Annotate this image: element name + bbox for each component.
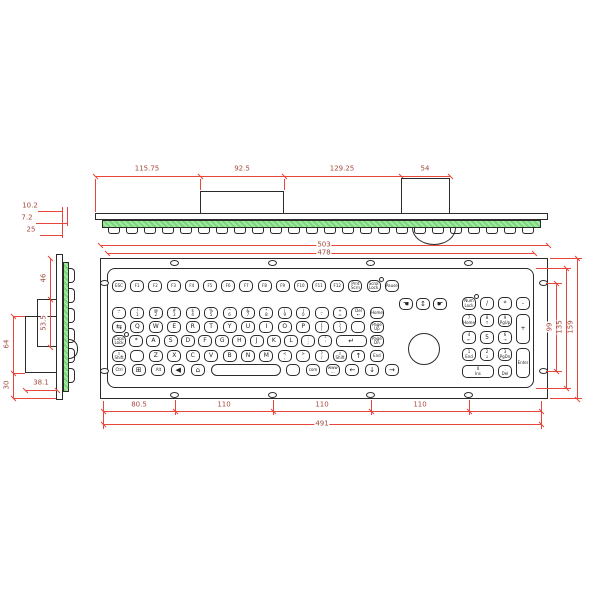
dimension-line: [13, 373, 14, 398]
dimension-label: 53.5: [41, 314, 48, 332]
extension-line: [200, 179, 201, 190]
dimension-label: 10.2: [21, 203, 39, 210]
space-key: [211, 364, 281, 376]
dimension-line: [40, 235, 62, 236]
key-f9: F9: [276, 280, 290, 292]
key-f: F: [198, 335, 212, 347]
mounting-hole: [100, 280, 109, 286]
key-i: I: [259, 321, 273, 333]
right-shift-key: ⇧Shift: [333, 350, 347, 362]
key-f4: F4: [185, 280, 199, 292]
extension-line: [13, 373, 25, 374]
key-profile-bump: [486, 228, 498, 234]
www-key: www...: [326, 364, 340, 376]
keyboard-technical-drawing: 115.75 92.5 129.25 54 10.2 7.2 25: [0, 0, 600, 600]
extension-line: [67, 207, 68, 226]
key-profile-bump: [216, 228, 228, 234]
key-profile-bump: [360, 228, 372, 234]
key-f8: F8: [258, 280, 272, 292]
extension-line: [95, 179, 96, 212]
mounting-hole: [268, 392, 277, 398]
dimension-line: [50, 258, 51, 299]
dimension-label: 7.2: [20, 215, 33, 222]
key-profile-bump: [504, 228, 516, 234]
dimension-label: 92.5: [233, 166, 251, 173]
dimension-label: 110: [216, 402, 231, 409]
key-profile-bump: [69, 288, 75, 303]
dimension-label: 478: [316, 250, 331, 257]
key-profile-bump: [69, 268, 75, 283]
numpad-dot-key: .Del: [498, 365, 512, 378]
numpad-3-key: 3PgDn: [498, 348, 512, 361]
dimension-label: 64: [4, 339, 11, 350]
mounting-hole: [170, 260, 179, 266]
key-f5: F5: [203, 280, 217, 292]
key-r: R: [186, 321, 200, 333]
bottom-key-row: Ctrl⊞Alt◀⌂comwww...←↓→: [112, 364, 399, 376]
esc-key: ESC: [112, 280, 126, 292]
dimension-label: 80.5: [130, 402, 148, 409]
numpad-8-key: 8↑: [480, 314, 494, 327]
key-profile-bump: [162, 228, 174, 234]
dimension-line: [13, 316, 14, 373]
extension-line: [13, 316, 25, 317]
numpad-4-key: 4←: [462, 331, 476, 344]
semicolon-key: :;: [301, 335, 315, 347]
key-7: &7: [241, 307, 255, 319]
side-view-trackball-dome: [69, 339, 78, 359]
key-profile-bump: [252, 228, 264, 234]
key-f11: F11: [312, 280, 326, 292]
key-4: $4: [186, 307, 200, 319]
numpad-plus-key: +: [516, 314, 530, 344]
down-arrow-key: ↓: [365, 364, 379, 376]
key-y: Y: [223, 321, 237, 333]
pause-key: Pause: [385, 280, 399, 292]
qwerty-key-row: ⇆QWERTYUIOP{[}]PageUp: [112, 321, 384, 333]
numpad-5-key: 5: [480, 331, 494, 344]
tab-key: ⇆: [112, 321, 126, 333]
key-q: Q: [130, 321, 144, 333]
key-0: )0: [296, 307, 310, 319]
top-view-keys: [108, 228, 534, 234]
mouse-right-click-key: ☛: [433, 298, 447, 310]
numpad-multiply-key: *: [498, 297, 512, 310]
numpad-0-key: 0Ins: [462, 365, 494, 378]
shift-key-row: ⇧ShiftZXCVBNM<,>.?/⇧Shift↑End: [112, 350, 384, 362]
key-p: P: [296, 321, 310, 333]
key-m: M: [259, 350, 273, 362]
key-t: T: [204, 321, 218, 333]
key-u: U: [241, 321, 255, 333]
key-b: B: [223, 350, 237, 362]
enter-key: ↵: [336, 335, 367, 347]
key-9: (9: [278, 307, 292, 319]
side-view-panel-plate: [56, 254, 63, 400]
extension-line: [546, 283, 562, 284]
key-f2: F2: [148, 280, 162, 292]
rear-box-tall: [401, 178, 450, 214]
equals-key: +=: [333, 307, 347, 319]
com-key: com: [306, 364, 320, 376]
extension-line: [13, 398, 56, 399]
key-profile-bump: [324, 228, 336, 234]
key-v: V: [204, 350, 218, 362]
key-f10: F10: [294, 280, 308, 292]
extension-line: [284, 179, 285, 190]
web-home-key: ⌂: [191, 364, 205, 376]
numeric-keypad: NumLock/*-7Home8↑9PgUp+4←56→1End2↓3PgDnE…: [462, 297, 530, 378]
key-h: H: [232, 335, 246, 347]
numpad-minus-key: -: [516, 297, 530, 310]
numpad-1-key: 1End: [462, 348, 476, 361]
dimension-label: 159: [568, 319, 575, 334]
key-n: N: [241, 350, 255, 362]
numlock-key: NumLock: [462, 297, 476, 310]
key-e: E: [167, 321, 181, 333]
key-1: !1: [130, 307, 144, 319]
extension-line: [546, 371, 562, 372]
key-f3: F3: [167, 280, 181, 292]
dimension-label: 99: [547, 322, 554, 333]
extension-line: [62, 207, 63, 238]
number-key-row: ~`!1@2#3$4%5^6&7*8(9)0_-+=Del←Home: [112, 307, 384, 319]
key-profile-bump: [144, 228, 156, 234]
key-2: @2: [149, 307, 163, 319]
dimension-label: 25: [26, 227, 37, 234]
dimension-label: 30: [4, 380, 11, 391]
mounting-hole: [366, 260, 375, 266]
dimension-line: [103, 411, 541, 412]
minus-key: _-: [315, 307, 329, 319]
mounting-hole: [464, 260, 473, 266]
dimension-label: 110: [314, 402, 329, 409]
right-arrow-key: →: [385, 364, 399, 376]
key-3: #3: [167, 307, 181, 319]
key-o: O: [278, 321, 292, 333]
dimension-label: 115.75: [134, 166, 161, 173]
dimension-line: [577, 258, 578, 399]
led-indicator: [474, 294, 479, 299]
mounting-hole: [464, 392, 473, 398]
rear-box-small: [200, 191, 284, 214]
dimension-label: 38.1: [32, 380, 50, 387]
key-f12: F12: [330, 280, 344, 292]
key-profile-bump: [306, 228, 318, 234]
blank-key: [351, 321, 365, 333]
mouse-scroll-key: ↕: [416, 298, 430, 310]
top-view-trackball-dome: [412, 228, 456, 245]
backspace-key: Del←: [351, 307, 365, 319]
left-shift-key: ⇧Shift: [112, 350, 126, 362]
mounting-hole: [366, 392, 375, 398]
scrolllock-key: ScrolLock: [367, 280, 381, 292]
win-key: ⊞: [132, 364, 146, 376]
side-view-keys: [69, 268, 75, 383]
dimension-line: [25, 390, 57, 391]
key-profile-bump: [342, 228, 354, 234]
key-z: Z: [149, 350, 163, 362]
lbracket-key: {[: [315, 321, 329, 333]
dimension-line: [95, 176, 450, 177]
alt-key: Alt: [151, 364, 165, 376]
left-arrow-key: ←: [345, 364, 359, 376]
key-j: J: [250, 335, 264, 347]
dimension-line: [38, 211, 62, 212]
key-profile-bump: [69, 308, 75, 323]
top-view-pcb: [102, 220, 541, 228]
numpad-divide-key: /: [480, 297, 494, 310]
numpad-9-key: 9PgUp: [498, 314, 512, 327]
top-view-panel-plate: [95, 213, 548, 220]
key-s: S: [164, 335, 178, 347]
numpad-2-key: 2↓: [480, 348, 494, 361]
dimension-label: 503: [316, 242, 331, 249]
printscreen-key: PrntScrn: [348, 280, 362, 292]
key-x: X: [167, 350, 181, 362]
key-profile-bump: [69, 368, 75, 383]
numpad-7-key: 7Home: [462, 314, 476, 327]
end-key: End: [370, 350, 384, 362]
mounting-hole: [268, 260, 277, 266]
mouse-left-click-key: ☚: [399, 298, 413, 310]
led-indicator: [379, 277, 384, 282]
comma-key: <,: [278, 350, 292, 362]
key-f6: F6: [221, 280, 235, 292]
led-indicator: [124, 332, 129, 337]
pagedown-key: PageDn: [370, 335, 384, 347]
star-key: *: [129, 335, 143, 347]
browser-back-key: ◀: [171, 364, 185, 376]
numpad-enter-key: Enter: [516, 348, 530, 378]
key-g: G: [215, 335, 229, 347]
key-profile-bump: [522, 228, 534, 234]
key-c: C: [186, 350, 200, 362]
home-key: Home: [370, 307, 384, 319]
trackball: [408, 333, 440, 365]
key-6: ^6: [223, 307, 237, 319]
home-key-row: CapsLock*ASDFGHJKL:;"'↵PageDn: [112, 335, 384, 347]
key-profile-bump: [468, 228, 480, 234]
dimension-label: 54: [420, 166, 431, 173]
key-d: D: [181, 335, 195, 347]
blank-key: [130, 350, 144, 362]
up-arrow-key: ↑: [351, 350, 365, 362]
key-profile-bump: [234, 228, 246, 234]
key-profile-bump: [198, 228, 210, 234]
dimension-label: 110: [412, 402, 427, 409]
key-8: *8: [259, 307, 273, 319]
dimension-line: [50, 299, 51, 347]
key-profile-bump: [126, 228, 138, 234]
period-key: >.: [296, 350, 310, 362]
key-w: W: [149, 321, 163, 333]
rbracket-key: }]: [333, 321, 347, 333]
mounting-hole: [100, 368, 109, 374]
key-k: K: [267, 335, 281, 347]
function-key-row: ESCF1F2F3F4F5F6F7F8F9F10F11F12PrntScrnSc…: [112, 280, 399, 292]
numpad-6-key: 6→: [498, 331, 512, 344]
pageup-key: PageUp: [370, 321, 384, 333]
key-profile-bump: [288, 228, 300, 234]
key-a: A: [146, 335, 160, 347]
slash-key: ?/: [315, 350, 329, 362]
key-profile-bump: [396, 228, 408, 234]
key-f7: F7: [239, 280, 253, 292]
dimension-label: 129.25: [329, 166, 356, 173]
ctrl-key: Ctrl: [112, 364, 126, 376]
key-5: %5: [204, 307, 218, 319]
quote-key: "': [318, 335, 332, 347]
blank-key: [286, 364, 300, 376]
key-l: L: [284, 335, 298, 347]
dimension-label: 491: [314, 421, 329, 428]
key-profile-bump: [108, 228, 120, 234]
mounting-hole: [170, 392, 179, 398]
backtick-key: ~`: [112, 307, 126, 319]
key-profile-bump: [180, 228, 192, 234]
key-profile-bump: [378, 228, 390, 234]
capslock-key: CapsLock: [112, 335, 126, 347]
key-f1: F1: [130, 280, 144, 292]
dimension-label: 46: [41, 273, 48, 284]
mouse-button-row: ☚↕☛: [399, 298, 447, 310]
key-profile-bump: [270, 228, 282, 234]
dimension-label: 135: [557, 319, 564, 334]
